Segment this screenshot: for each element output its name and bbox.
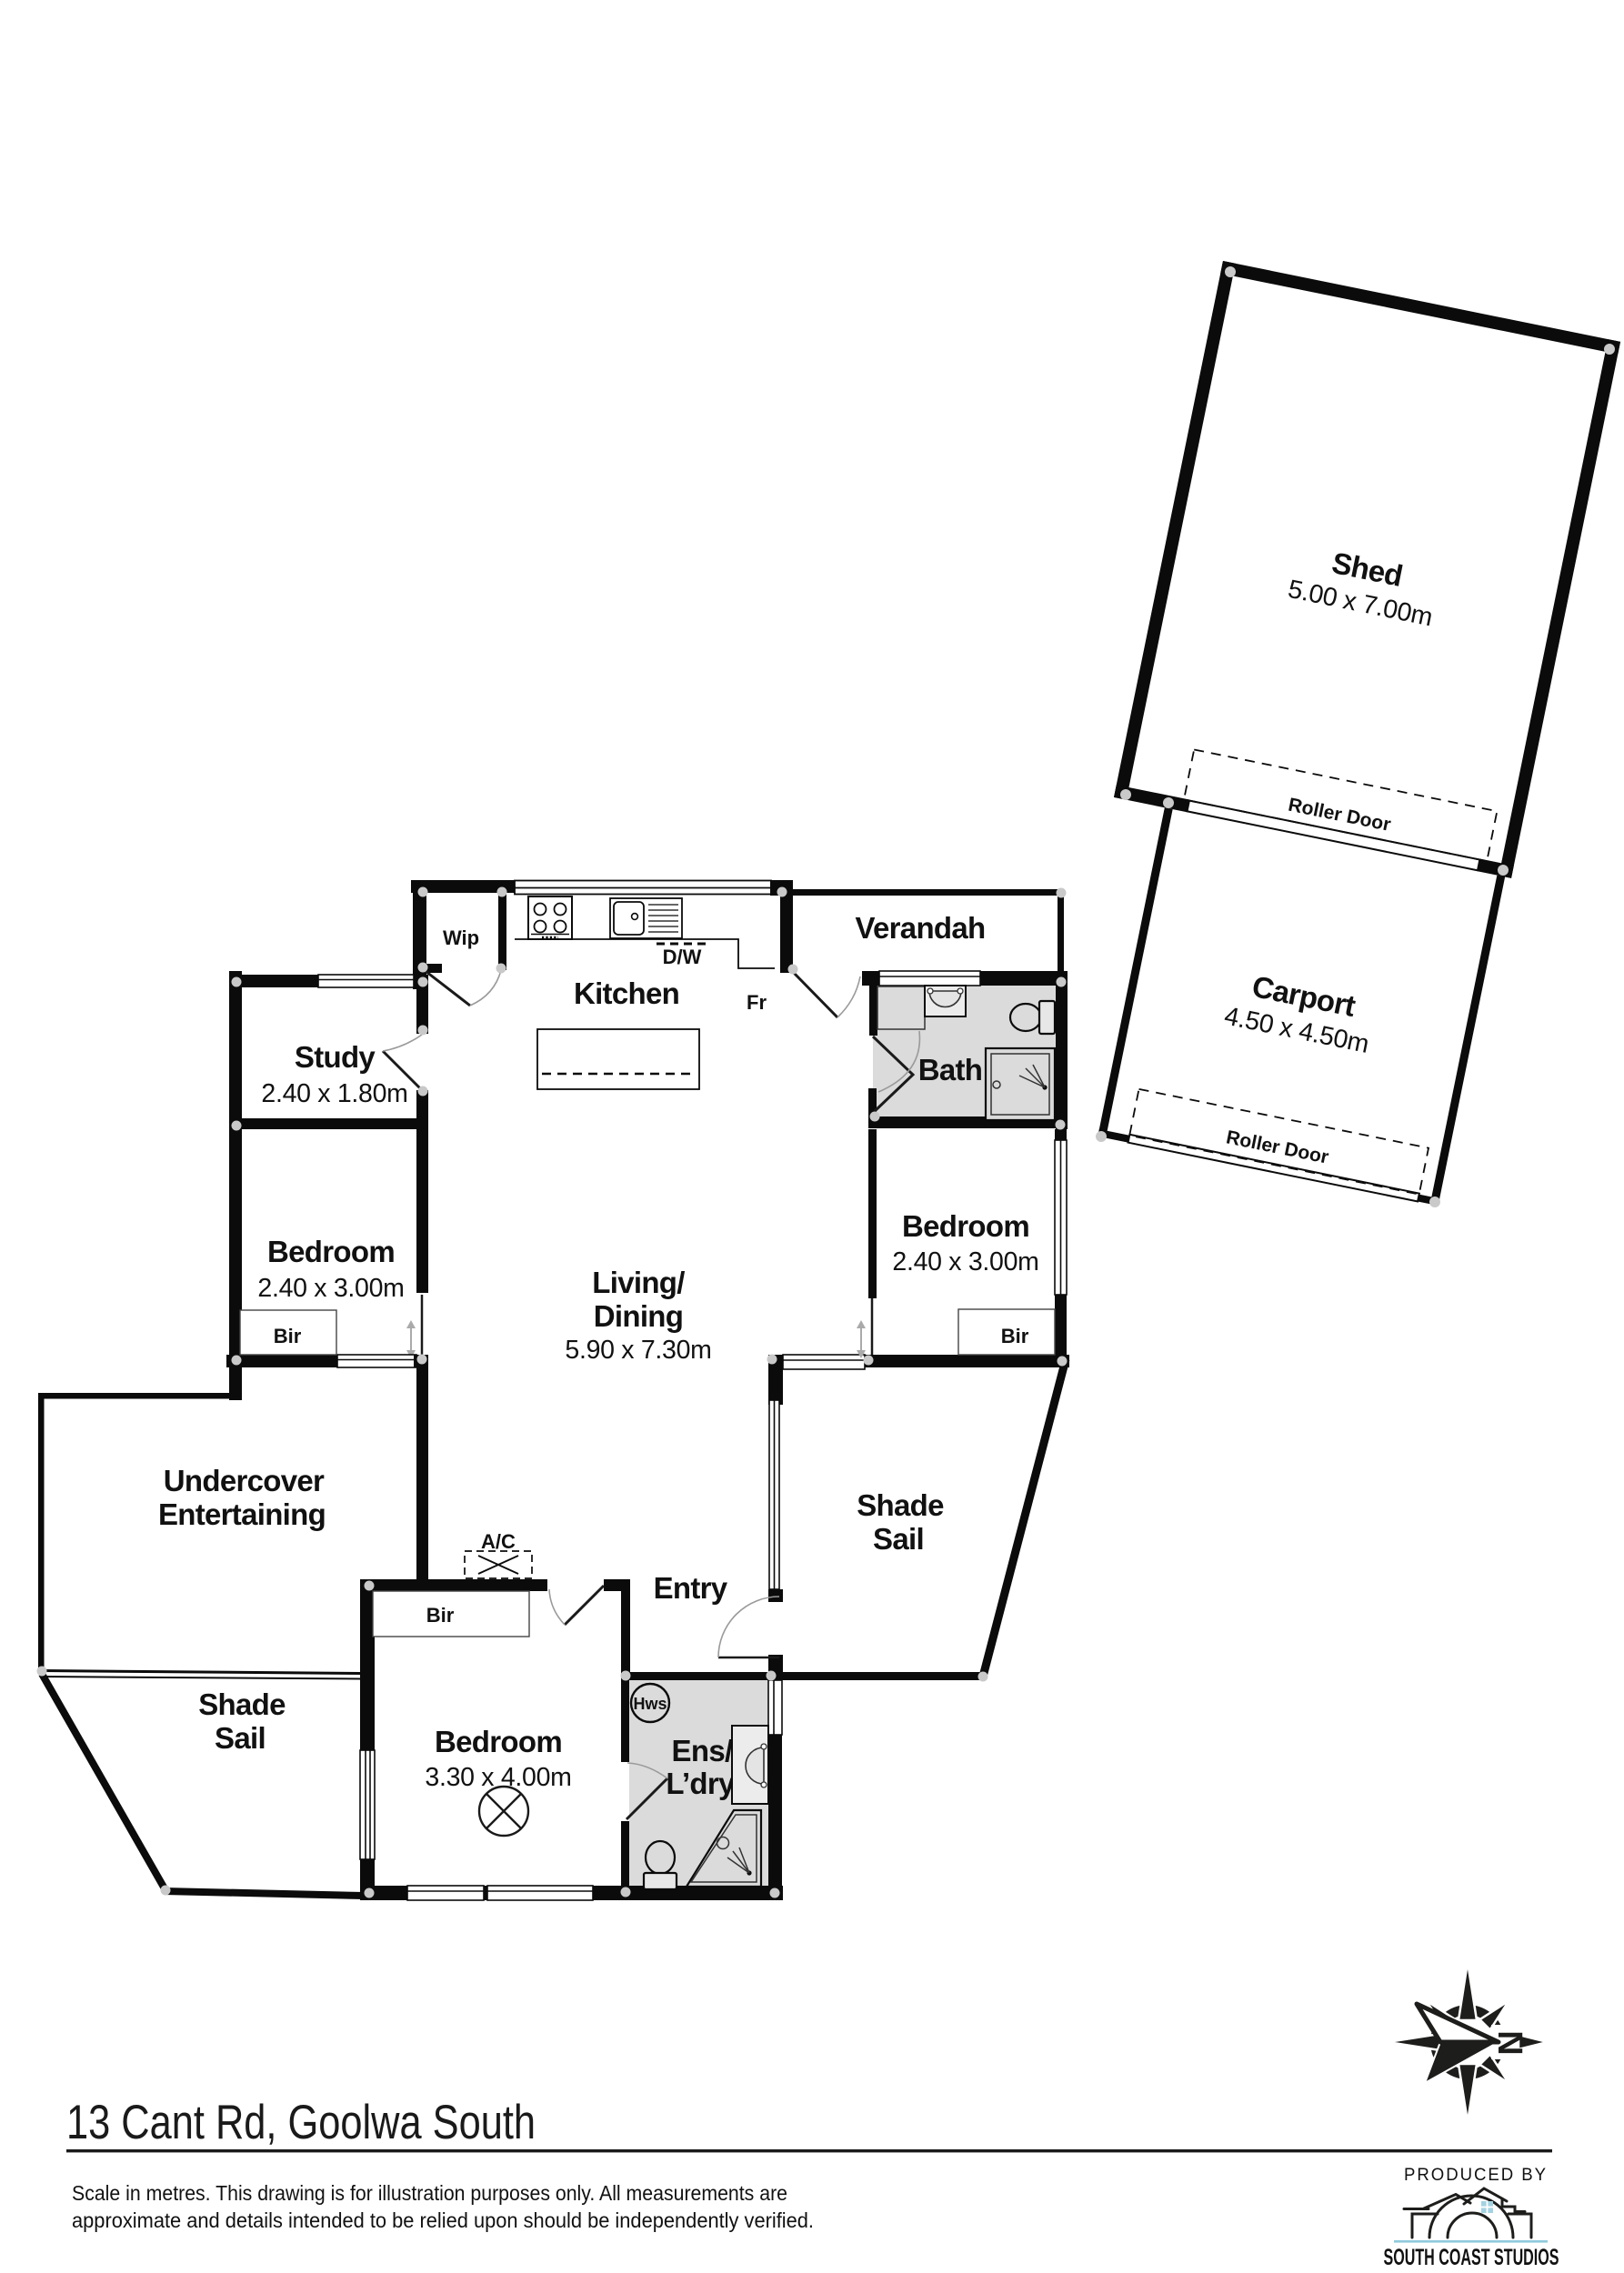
svg-text:Bir: Bir [1001, 1325, 1029, 1347]
svg-text:Sail: Sail [873, 1522, 924, 1556]
svg-text:Sail: Sail [215, 1721, 266, 1755]
svg-text:Bedroom: Bedroom [267, 1235, 395, 1268]
svg-text:Shade: Shade [857, 1488, 944, 1522]
svg-text:2.40 x 1.80m: 2.40 x 1.80m [261, 1079, 407, 1108]
svg-text:A/C: A/C [481, 1530, 516, 1553]
svg-text:Living/: Living/ [592, 1266, 685, 1299]
svg-text:L’dry: L’dry [666, 1767, 736, 1800]
svg-text:D/W: D/W [663, 946, 702, 968]
svg-text:PRODUCED BY: PRODUCED BY [1404, 2166, 1548, 2185]
svg-text:Shade: Shade [198, 1687, 286, 1721]
svg-text:Verandah: Verandah [856, 911, 986, 945]
svg-text:N: N [1490, 2030, 1529, 2055]
svg-text:Bir: Bir [426, 1604, 455, 1627]
svg-text:Entertaining: Entertaining [158, 1497, 326, 1531]
svg-text:Bedroom: Bedroom [902, 1209, 1029, 1243]
svg-text:SOUTH COAST STUDIOS: SOUTH COAST STUDIOS [1384, 2245, 1559, 2270]
svg-text:Fr: Fr [747, 991, 767, 1014]
svg-text:2.40 x 3.00m: 2.40 x 3.00m [892, 1247, 1038, 1277]
svg-text:Bedroom: Bedroom [435, 1725, 562, 1758]
svg-text:Study: Study [295, 1040, 376, 1074]
svg-text:Dining: Dining [594, 1299, 683, 1333]
svg-text:Ens/: Ens/ [672, 1734, 733, 1767]
svg-text:approximate and details intend: approximate and details intended to be r… [72, 2208, 814, 2232]
svg-text:2.40 x 3.00m: 2.40 x 3.00m [257, 1274, 404, 1303]
svg-text:Wip: Wip [443, 926, 479, 949]
svg-text:5.90 x 7.30m: 5.90 x 7.30m [565, 1336, 711, 1365]
svg-text:Entry: Entry [654, 1571, 728, 1605]
svg-text:Bath: Bath [918, 1053, 983, 1086]
svg-text:Kitchen: Kitchen [574, 976, 679, 1010]
svg-text:Hws: Hws [633, 1695, 667, 1713]
svg-text:Bir: Bir [274, 1325, 302, 1347]
svg-text:Undercover: Undercover [164, 1464, 325, 1497]
svg-text:13 Cant Rd, Goolwa South: 13 Cant Rd, Goolwa South [66, 2096, 536, 2149]
svg-text:Scale in metres. This drawing: Scale in metres. This drawing is for ill… [72, 2181, 787, 2205]
